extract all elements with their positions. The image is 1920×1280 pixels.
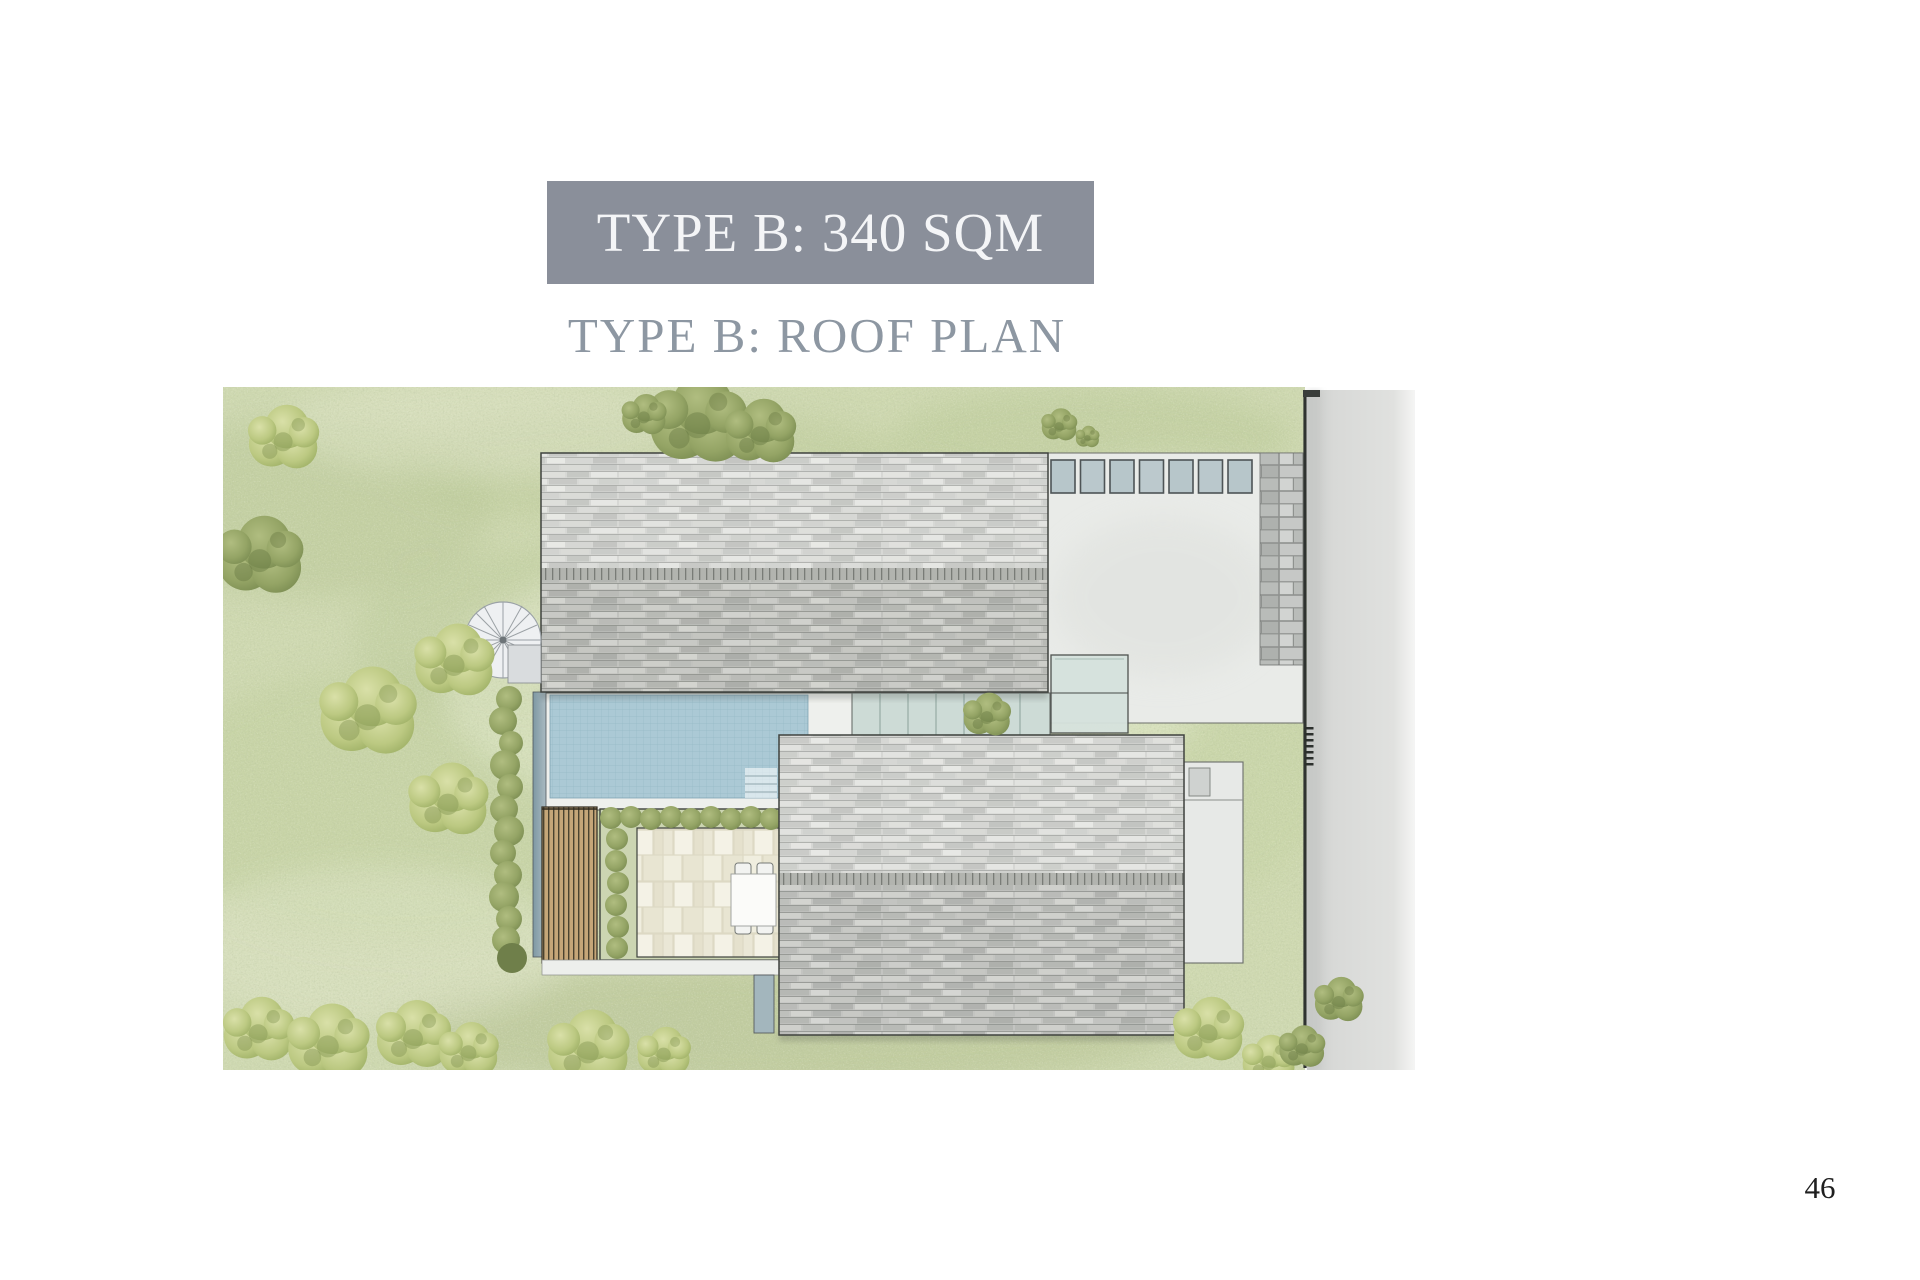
glass-canopy <box>852 693 1050 735</box>
title-banner-label: TYPE B: 340 SQM <box>597 202 1044 263</box>
upper-roof-ridge <box>541 568 1048 580</box>
dining-set <box>731 863 776 934</box>
dining-table <box>731 874 776 926</box>
courtyard <box>600 806 782 960</box>
title-banner: TYPE B: 340 SQM <box>547 181 1094 284</box>
lower-right-terrace <box>1184 762 1243 963</box>
roof-plan-illustration <box>223 387 1415 1070</box>
water-feature <box>754 975 774 1033</box>
stair-landing <box>508 645 541 683</box>
pool-steps <box>745 768 777 798</box>
lower-roof-ridge <box>779 873 1184 885</box>
stone-paver-path <box>1260 453 1303 665</box>
page-subtitle: TYPE B: ROOF PLAN <box>467 306 1167 366</box>
skylight-row <box>1051 460 1252 493</box>
timber-pergola <box>542 807 597 963</box>
upper-roof <box>541 453 1048 699</box>
glass-skylight-box <box>1051 655 1128 733</box>
side-road <box>1307 390 1415 1070</box>
page-number: 46 <box>1780 1170 1860 1206</box>
courtyard-deck-band <box>542 960 779 975</box>
lower-roof <box>779 735 1184 1041</box>
